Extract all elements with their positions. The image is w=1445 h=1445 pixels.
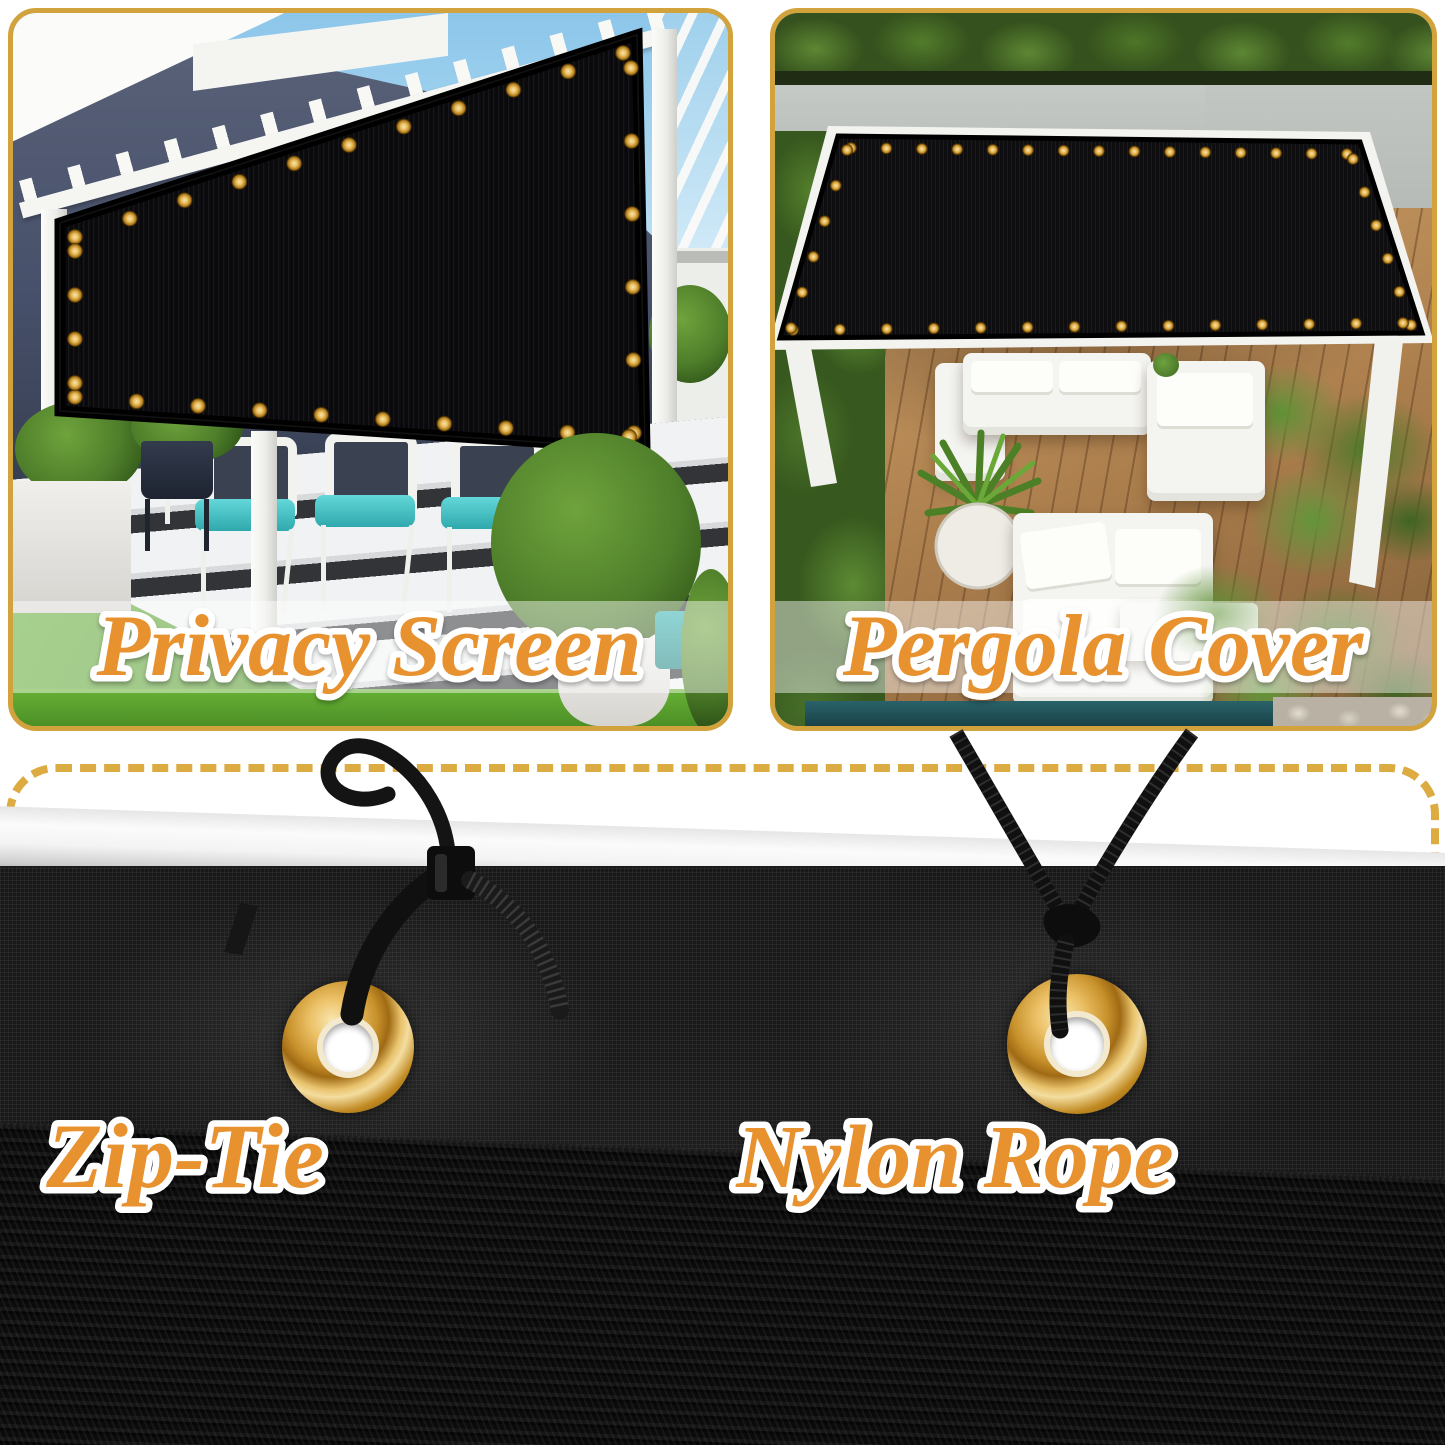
product-image: Privacy Screen (0, 0, 1445, 1445)
zip-tie-graphic (224, 746, 560, 1014)
nylon-rope-graphic (956, 733, 1192, 1030)
fastener-overlay (0, 0, 1445, 1445)
